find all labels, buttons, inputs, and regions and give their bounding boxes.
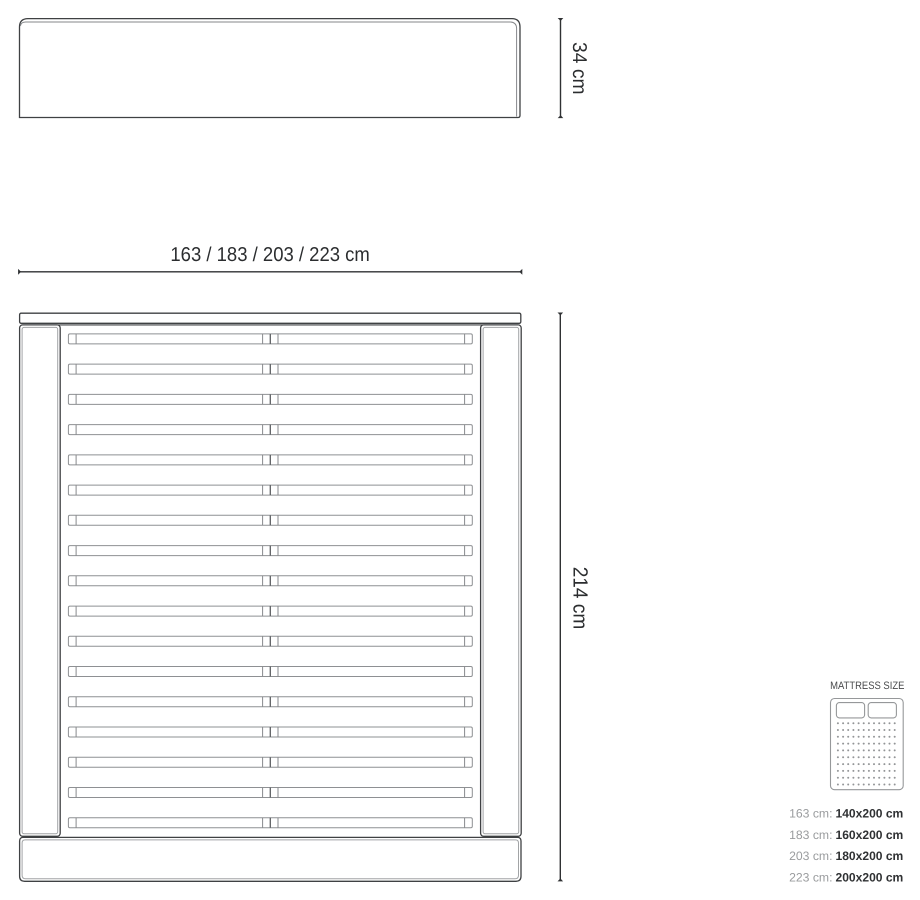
svg-text:MATTRESS SIZE: MATTRESS SIZE <box>830 680 904 692</box>
svg-text:160x200 cm: 160x200 cm <box>836 828 904 842</box>
svg-text:223 cm:: 223 cm: <box>789 871 832 885</box>
svg-text:163 / 183 / 203 / 223 cm: 163 / 183 / 203 / 223 cm <box>170 244 369 266</box>
svg-text:203 cm:: 203 cm: <box>789 849 832 863</box>
svg-text:183 cm:: 183 cm: <box>789 828 832 842</box>
svg-text:163 cm:: 163 cm: <box>789 807 832 821</box>
svg-text:200x200 cm: 200x200 cm <box>836 871 904 885</box>
svg-text:180x200 cm: 180x200 cm <box>836 849 904 863</box>
svg-text:214 cm: 214 cm <box>569 567 592 630</box>
svg-text:34 cm: 34 cm <box>568 42 590 95</box>
svg-text:140x200 cm: 140x200 cm <box>836 807 904 821</box>
